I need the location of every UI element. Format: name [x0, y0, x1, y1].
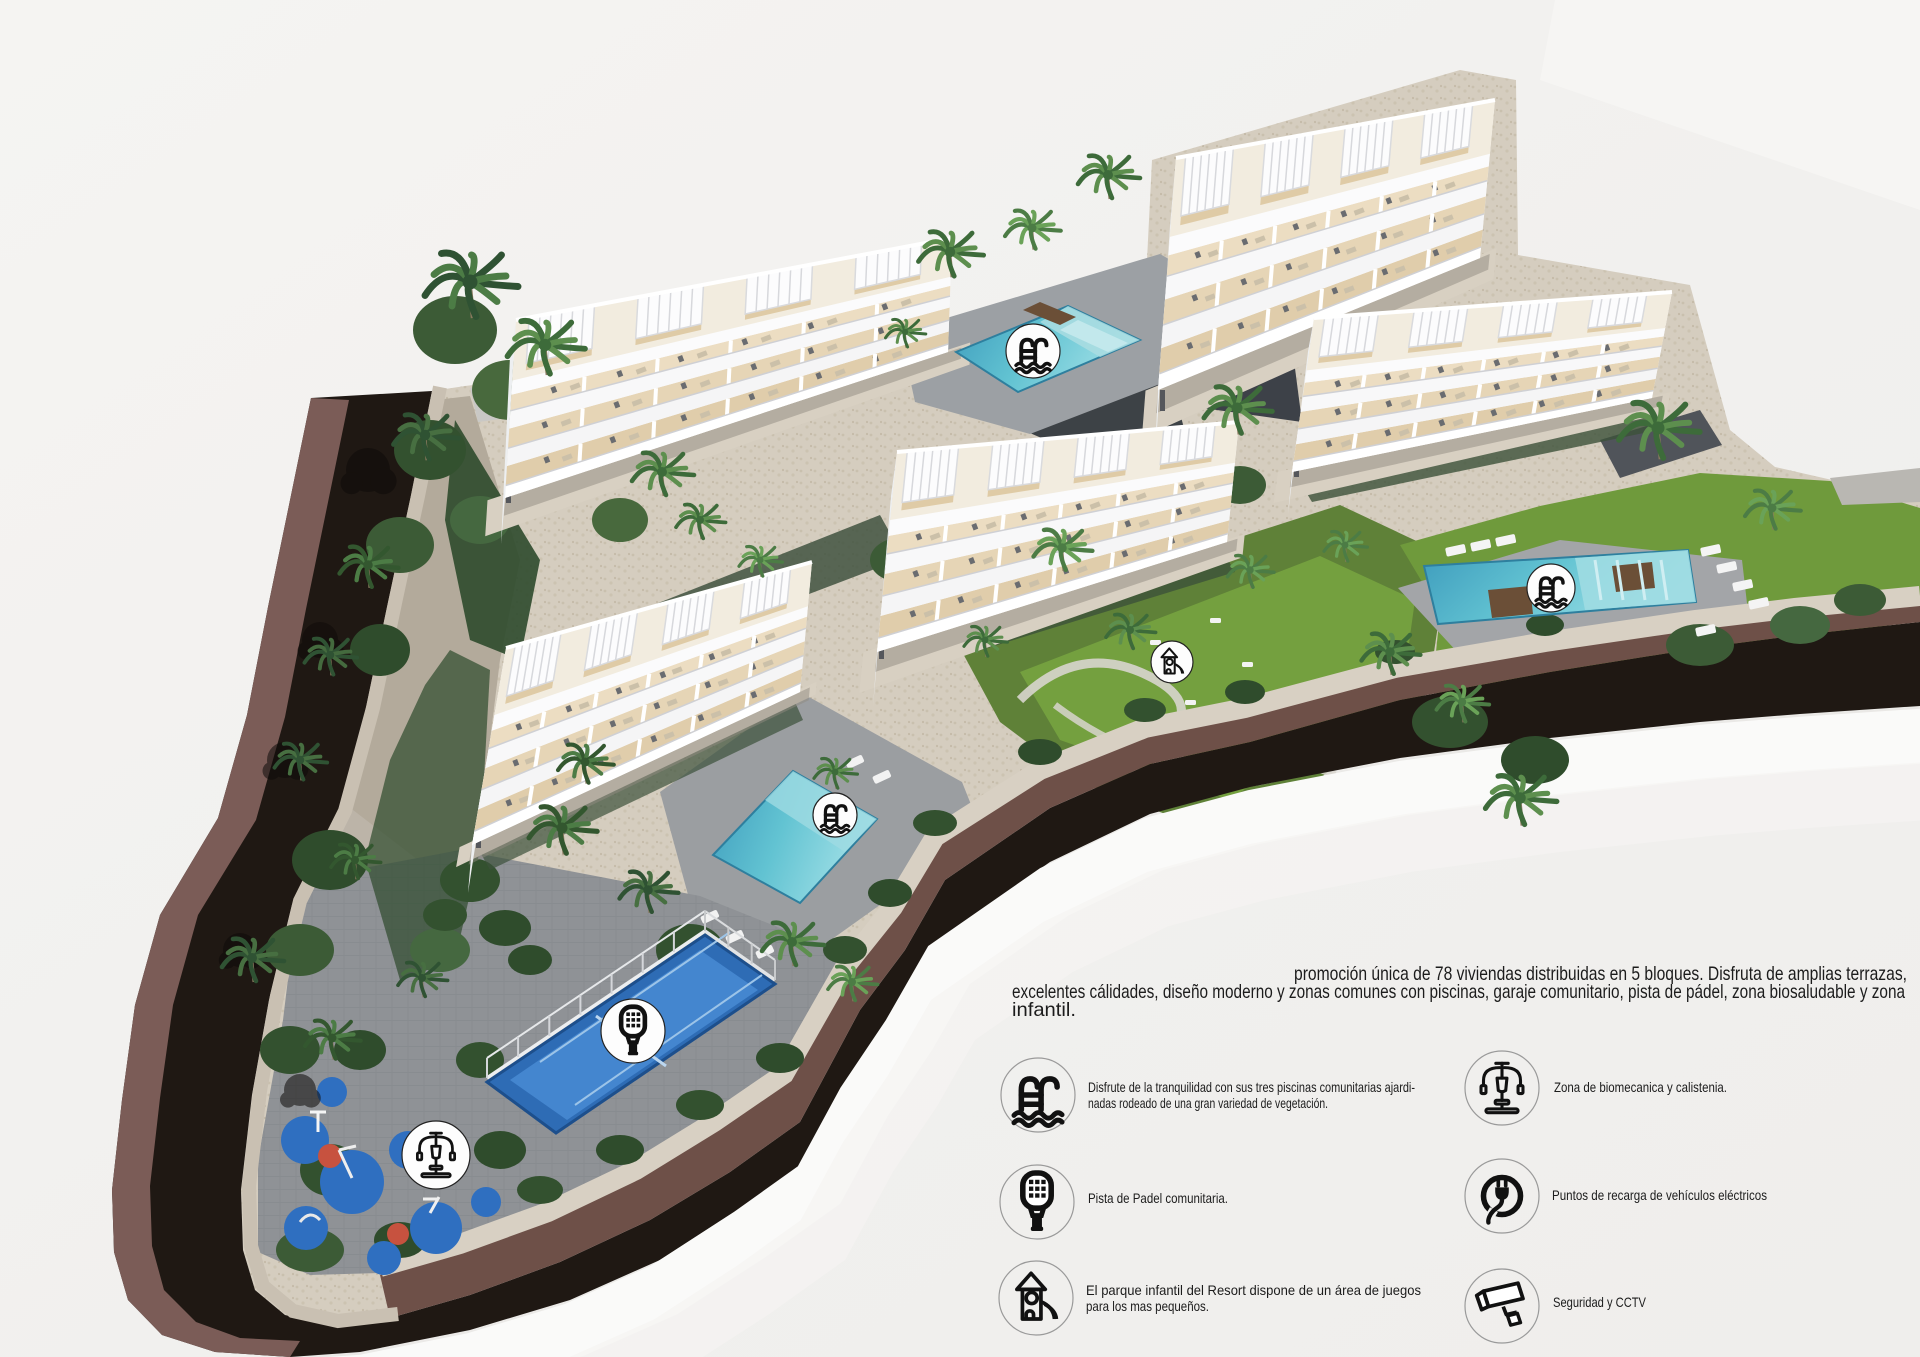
svg-text:nadas rodeado de una gran vari: nadas rodeado de una gran variedad de ve… [1088, 1095, 1328, 1111]
svg-text:Zona de biomecanica y calisten: Zona de biomecanica y calistenia. [1554, 1079, 1727, 1095]
svg-text:Pista de Padel comunitaria.: Pista de Padel comunitaria. [1088, 1190, 1228, 1206]
svg-text:para los mas pequeños.: para los mas pequeños. [1086, 1298, 1209, 1314]
svg-text:Puntos de recarga de vehículos: Puntos de recarga de vehículos eléctrico… [1552, 1187, 1767, 1203]
svg-text:El parque infantil del Resort: El parque infantil del Resort dispone de… [1086, 1282, 1421, 1298]
svg-text:Disfrute de la tranquilidad co: Disfrute de la tranquilidad con sus tres… [1088, 1079, 1415, 1095]
svg-text:Seguridad y CCTV: Seguridad y CCTV [1553, 1294, 1647, 1310]
svg-text:infantil.: infantil. [1012, 999, 1076, 1021]
svg-text:excelentes cálidades, diseño m: excelentes cálidades, diseño moderno y z… [1012, 981, 1905, 1003]
